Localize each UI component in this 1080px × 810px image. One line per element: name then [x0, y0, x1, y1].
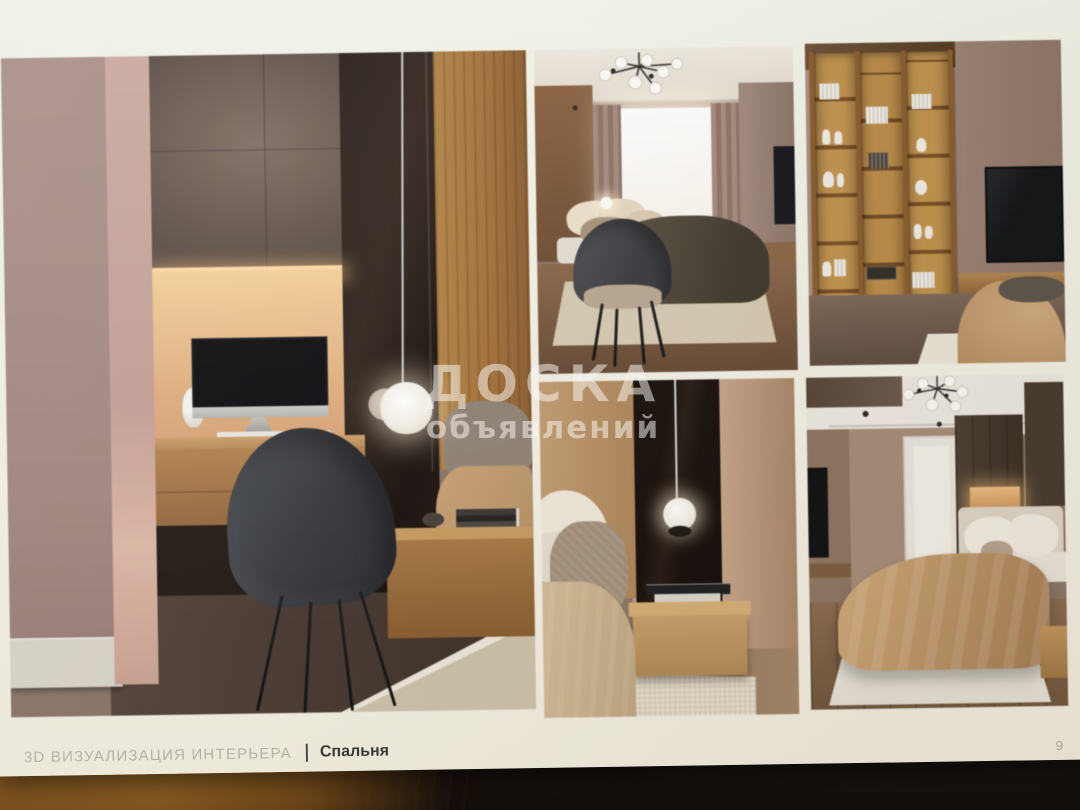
wood-bench — [1040, 626, 1068, 678]
book-stack — [456, 508, 519, 527]
ceiling-spot — [937, 422, 942, 427]
render-bedside-detail — [539, 378, 799, 718]
imac-screen — [191, 336, 328, 409]
nightstand-front — [633, 615, 748, 677]
pendant-globe — [380, 382, 433, 435]
footer-divider — [306, 744, 308, 762]
footer: 3D ВИЗУАЛИЗАЦИЯ ИНТЕРЬЕРА Спальня — [24, 740, 390, 768]
render-bedroom-door — [806, 374, 1068, 710]
render-bedroom-window — [534, 46, 798, 374]
tv-screen — [773, 146, 795, 224]
shelf-books — [819, 83, 839, 99]
sputnik-chandelier — [589, 52, 690, 100]
ceiling-soffit — [806, 376, 902, 408]
shelf-bottle — [925, 226, 933, 239]
shelf-books-dark — [868, 152, 888, 168]
presentation-page: 3D ВИЗУАЛИЗАЦИЯ ИНТЕРЬЕРА Спальня 9 — [0, 0, 1080, 777]
shelf-radio — [866, 266, 896, 279]
render-shelving-tv — [805, 40, 1066, 366]
shelf-books — [912, 272, 934, 288]
shelf-vase — [916, 138, 926, 152]
upholstered-panels — [149, 53, 342, 268]
photographed-presentation: 3D ВИЗУАЛИЗАЦИЯ ИНТЕРЬЕРА Спальня 9 ДОСК… — [0, 0, 1080, 810]
shelf-vase — [822, 129, 830, 144]
page-number: 9 — [1056, 738, 1063, 753]
book-light — [654, 593, 720, 602]
footer-room-name: Спальня — [320, 742, 389, 761]
shelf-bottle — [914, 224, 922, 239]
ceiling-spot — [573, 105, 578, 110]
shelf-books — [912, 94, 932, 109]
mauve-wall — [1, 57, 123, 689]
media-console — [809, 563, 851, 578]
render-office-nook — [1, 50, 536, 717]
shelf-vase — [837, 173, 844, 187]
imac-chin — [192, 405, 328, 418]
dark-throw — [998, 276, 1064, 303]
cabinet-top — [386, 526, 533, 540]
shelf-vase — [834, 131, 842, 144]
ceiling-spot — [863, 411, 869, 417]
tv-screen — [985, 166, 1064, 263]
wardrobe-top — [1024, 382, 1065, 507]
side-cabinet — [386, 526, 535, 638]
shelf-bust — [915, 180, 927, 195]
sputnik-chandelier — [892, 375, 983, 418]
baseboard — [10, 637, 123, 689]
shelf-books — [834, 259, 846, 276]
footer-title: 3D ВИЗУАЛИЗАЦИЯ ИНТЕРЬЕРА — [24, 744, 292, 765]
shelf-figurine — [823, 171, 834, 187]
shelf-vase — [822, 261, 831, 276]
tv-screen — [807, 467, 828, 557]
shelf-books — [866, 107, 888, 124]
